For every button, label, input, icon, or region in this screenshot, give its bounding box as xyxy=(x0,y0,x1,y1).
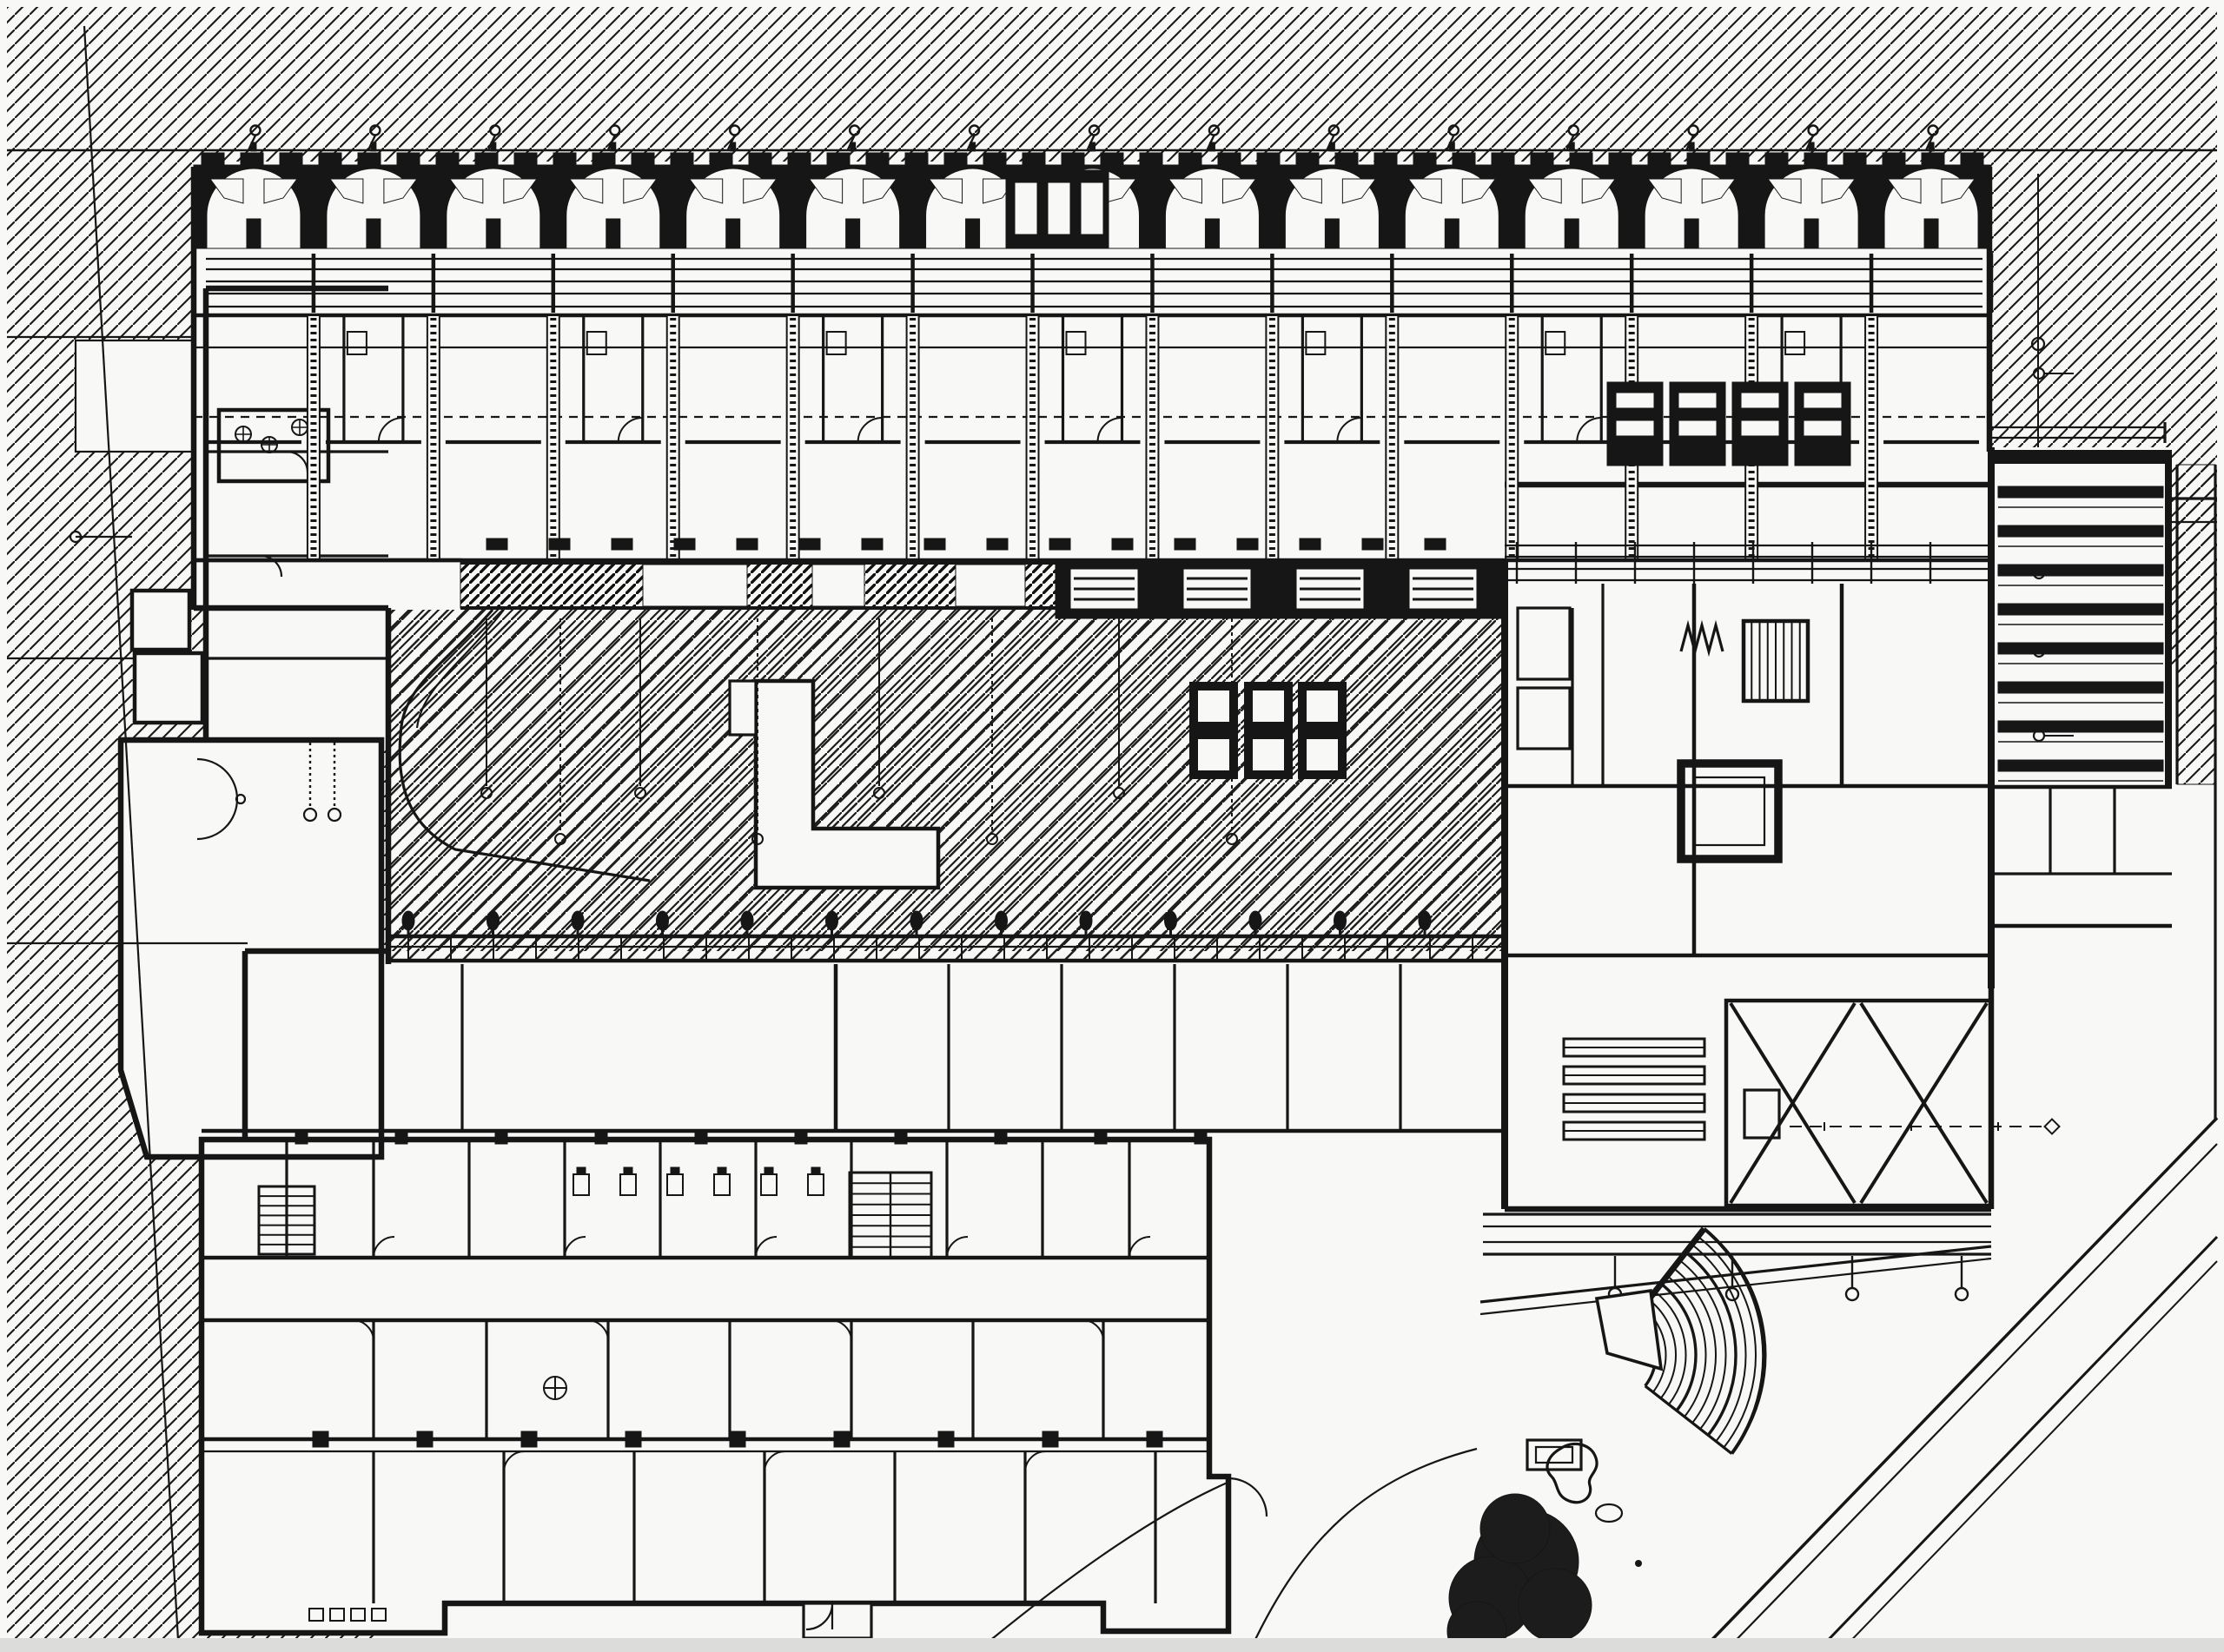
balcony-bar xyxy=(1998,760,2163,771)
hall-band-footprint xyxy=(245,951,1505,1140)
wall-furniture-dash xyxy=(924,539,945,550)
arcade-tooth xyxy=(1570,153,1592,166)
dark-cell-slot xyxy=(1081,182,1103,235)
site-plan-drawing xyxy=(0,0,2224,1652)
wing-top-tick xyxy=(795,1132,807,1144)
arcade-tooth xyxy=(358,153,381,166)
arcade-tooth xyxy=(475,153,498,166)
arcade-tooth xyxy=(1296,153,1319,166)
arcade-tooth xyxy=(436,153,459,166)
hook-base xyxy=(1569,142,1574,151)
arch-pendant xyxy=(247,219,261,248)
arcade-tooth xyxy=(1804,153,1827,166)
arcade-tooth xyxy=(1648,153,1671,166)
wc-tank xyxy=(624,1167,632,1174)
wing-top-tick xyxy=(495,1132,507,1144)
planter xyxy=(1302,735,1342,775)
arcade-tooth xyxy=(1492,153,1514,166)
arcade-tooth xyxy=(1179,153,1201,166)
courtyard-tree-icon xyxy=(572,911,584,930)
courtyard-tree-icon xyxy=(1165,911,1177,930)
arcade-tooth xyxy=(866,153,889,166)
arcade-tooth xyxy=(905,153,928,166)
arcade-tooth xyxy=(944,153,967,166)
wing-top-tick xyxy=(895,1132,907,1144)
meander-grille-band xyxy=(1056,560,1505,618)
arcade-tooth xyxy=(319,153,341,166)
arcade-tooth xyxy=(397,153,420,166)
courtyard-ground-hatch xyxy=(388,610,1503,962)
arcade-tooth xyxy=(1023,153,1045,166)
arcade-tooth xyxy=(1101,153,1123,166)
arcade-tooth xyxy=(671,153,693,166)
spine-node xyxy=(938,1431,954,1447)
hook-base xyxy=(970,142,976,151)
dark-cell-slot xyxy=(1804,420,1842,436)
arcade-tooth xyxy=(710,153,732,166)
arch-pendant xyxy=(1685,219,1698,248)
hook-base xyxy=(611,142,616,151)
site-notch-white xyxy=(76,340,194,452)
dark-cell-slot xyxy=(1741,393,1779,408)
planter xyxy=(1302,686,1342,726)
wing-top-tick xyxy=(295,1132,308,1144)
blueprint-page xyxy=(0,0,2224,1652)
arch-pendant xyxy=(1565,219,1579,248)
arcade-tooth xyxy=(553,153,576,166)
hook-base xyxy=(491,142,496,151)
courtyard-tree-icon xyxy=(1334,911,1347,930)
arcade-tooth xyxy=(1609,153,1632,166)
balcony-bar xyxy=(1998,486,2163,498)
wall-furniture-dash xyxy=(549,539,570,550)
wall-furniture-dash xyxy=(737,539,758,550)
balcony-bar xyxy=(1998,682,2163,693)
hook-base xyxy=(371,142,376,151)
courtyard-tree-icon xyxy=(402,911,414,930)
arcade-tooth xyxy=(1883,153,1905,166)
arcade-tooth xyxy=(514,153,537,166)
dark-cell-slot xyxy=(1678,393,1717,408)
spine-node xyxy=(625,1431,641,1447)
planter xyxy=(1194,735,1234,775)
arcade-tooth xyxy=(280,153,302,166)
planter xyxy=(1248,735,1288,775)
walk-band-gap xyxy=(956,565,1025,606)
arcade-tooth xyxy=(1961,153,1983,166)
annex-b-footprint xyxy=(135,653,202,723)
hook-base xyxy=(851,142,856,151)
wall-furniture-dash xyxy=(1300,539,1320,550)
arch-pendant xyxy=(1924,219,1938,248)
wall-furniture-dash xyxy=(862,539,883,550)
wc-tank xyxy=(811,1167,820,1174)
spine-node xyxy=(1147,1431,1162,1447)
balcony-bar xyxy=(1998,525,2163,537)
arcade-tooth xyxy=(788,153,811,166)
wall-furniture-dash xyxy=(612,539,632,550)
arcade-tooth xyxy=(1257,153,1280,166)
wall-furniture-dash xyxy=(1049,539,1070,550)
wall-furniture-dash xyxy=(799,539,820,550)
wc-tank xyxy=(764,1167,773,1174)
wing-top-tick xyxy=(695,1132,707,1144)
arcade-tooth xyxy=(1726,153,1749,166)
wall-furniture-dash xyxy=(1362,539,1383,550)
wing-top-tick xyxy=(1195,1132,1207,1144)
arcade-tooth xyxy=(632,153,654,166)
arcade-tooth xyxy=(983,153,1006,166)
walk-band-gap xyxy=(643,565,747,606)
wing-top-tick xyxy=(1095,1132,1107,1144)
arcade-tooth xyxy=(1062,153,1084,166)
dark-cell-slot xyxy=(1616,393,1654,408)
hook-base xyxy=(1809,142,1814,151)
arch-pendant xyxy=(1804,219,1818,248)
courtyard-tree-icon xyxy=(1249,911,1261,930)
entry-porch xyxy=(804,1603,871,1638)
arcade-tooth xyxy=(827,153,850,166)
wall-furniture-dash xyxy=(1425,539,1446,550)
arcade-tooth xyxy=(749,153,771,166)
south-wing-footprint xyxy=(202,1140,1228,1633)
annex-a-footprint xyxy=(132,591,189,650)
wall-furniture-dash xyxy=(1175,539,1195,550)
balcony-bar xyxy=(1998,565,2163,576)
hook-base xyxy=(1689,142,1694,151)
spine-node xyxy=(1042,1431,1058,1447)
tree-canopy xyxy=(1480,1494,1550,1563)
wc-tank xyxy=(577,1167,586,1174)
arcade-tooth xyxy=(592,153,615,166)
walk-band-gap xyxy=(812,565,864,606)
arcade-tooth xyxy=(1218,153,1241,166)
spine-node xyxy=(313,1431,328,1447)
dark-cell-slot xyxy=(1048,182,1070,235)
dark-cell-slot xyxy=(1804,393,1842,408)
wall-furniture-dash xyxy=(1112,539,1133,550)
wall-furniture-dash xyxy=(674,539,695,550)
garden-dot xyxy=(1635,1560,1642,1567)
hook-base xyxy=(1449,142,1454,151)
arch-pendant xyxy=(1445,219,1459,248)
arcade-tooth xyxy=(1413,153,1436,166)
balcony-bar xyxy=(1998,643,2163,654)
courtyard-tree-icon xyxy=(657,911,669,930)
arcade-tooth xyxy=(1687,153,1710,166)
wc-tank xyxy=(718,1167,726,1174)
arch-pendant xyxy=(966,219,980,248)
page-edge-strip xyxy=(0,1638,2224,1652)
arch-pendant xyxy=(846,219,860,248)
courtyard-tree-icon xyxy=(487,911,500,930)
courtyard-tree-icon xyxy=(826,911,838,930)
courtyard-tree-icon xyxy=(910,911,923,930)
spine-node xyxy=(730,1431,745,1447)
courtyard-tree-icon xyxy=(741,911,753,930)
arcade-tooth xyxy=(1922,153,1944,166)
arcade-tooth xyxy=(1374,153,1397,166)
wall-furniture-dash xyxy=(486,539,507,550)
hook-base xyxy=(731,142,736,151)
wing-top-bar xyxy=(1991,450,2172,464)
dark-cell-slot xyxy=(1015,182,1037,235)
wall-furniture-dash xyxy=(987,539,1008,550)
balcony-bar xyxy=(1998,604,2163,615)
arcade-tooth xyxy=(202,153,224,166)
hook-base xyxy=(1929,142,1934,151)
hook-base xyxy=(1329,142,1334,151)
spine-node xyxy=(521,1431,537,1447)
arch-pendant xyxy=(726,219,740,248)
spine-node xyxy=(834,1431,850,1447)
hook-base xyxy=(1090,142,1095,151)
wc-tank xyxy=(671,1167,679,1174)
wall-furniture-dash xyxy=(1237,539,1258,550)
planter xyxy=(1194,686,1234,726)
arch-pendant xyxy=(1205,219,1219,248)
arch-pendant xyxy=(367,219,381,248)
arch-pendant xyxy=(606,219,620,248)
dark-cell-slot xyxy=(1678,420,1717,436)
hook-base xyxy=(1209,142,1215,151)
arch-pendant xyxy=(1325,219,1339,248)
arcade-tooth xyxy=(1453,153,1475,166)
planter xyxy=(1248,686,1288,726)
courtyard-tree-icon xyxy=(996,911,1008,930)
arcade-tooth xyxy=(241,153,263,166)
arcade-tooth xyxy=(1765,153,1788,166)
wing-top-tick xyxy=(595,1132,607,1144)
arch-pendant xyxy=(486,219,500,248)
arcade-tooth xyxy=(1140,153,1162,166)
arcade-tooth xyxy=(1335,153,1358,166)
balcony-bar xyxy=(1998,721,2163,732)
arcade-tooth xyxy=(1843,153,1866,166)
courtyard-tree-icon xyxy=(1419,911,1431,930)
dark-cell-slot xyxy=(1741,420,1779,436)
dark-cell-slot xyxy=(1616,420,1654,436)
hedge-strip-hatch xyxy=(2177,465,2215,784)
corridor-band xyxy=(460,563,1056,608)
hook-base xyxy=(251,142,256,151)
tree-canopy xyxy=(1519,1569,1592,1642)
arcade-tooth xyxy=(1531,153,1553,166)
courtyard-tree-icon xyxy=(1080,911,1092,930)
terrace-step xyxy=(730,681,756,735)
spine-node xyxy=(417,1431,433,1447)
wing-top-tick xyxy=(395,1132,407,1144)
wing-top-tick xyxy=(995,1132,1007,1144)
